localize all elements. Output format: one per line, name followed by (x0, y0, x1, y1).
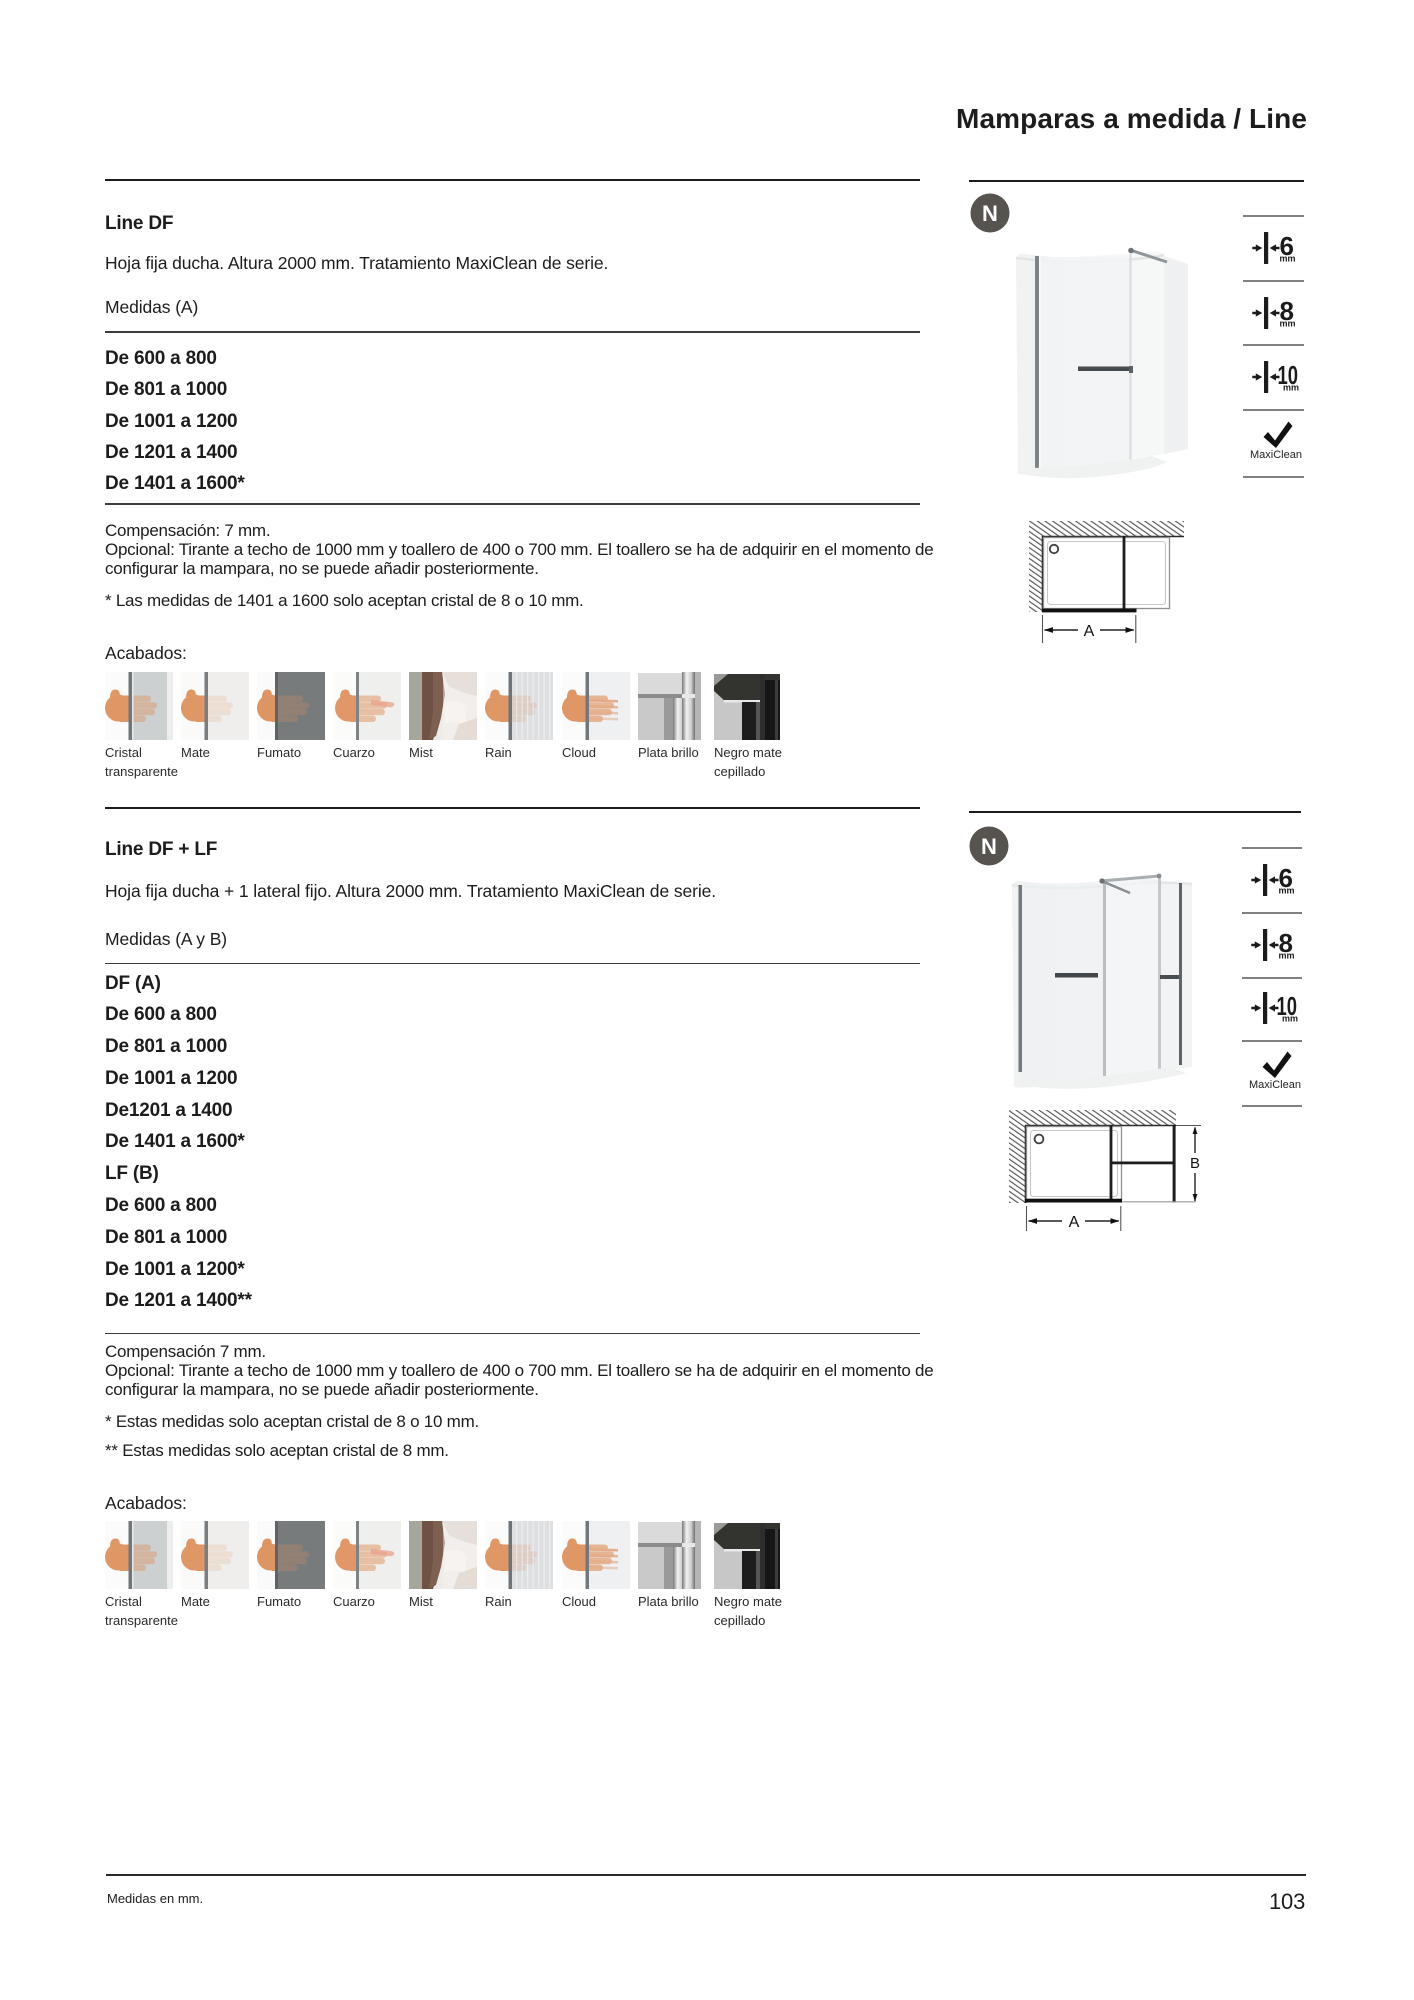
svg-text:mm: mm (1282, 1014, 1298, 1024)
svg-text:mm: mm (1279, 886, 1295, 896)
svg-text:A: A (1069, 1214, 1080, 1231)
svg-text:mm: mm (1283, 383, 1299, 393)
svg-text:N: N (981, 834, 997, 859)
svg-text:MaxiClean: MaxiClean (1250, 449, 1302, 461)
svg-text:B: B (1190, 1155, 1200, 1172)
svg-text:mm: mm (1280, 318, 1296, 328)
svg-text:MaxiClean: MaxiClean (1249, 1079, 1301, 1091)
svg-text:N: N (982, 201, 998, 226)
svg-text:A: A (1084, 623, 1095, 640)
svg-text:mm: mm (1280, 254, 1296, 264)
svg-text:mm: mm (1279, 950, 1295, 960)
